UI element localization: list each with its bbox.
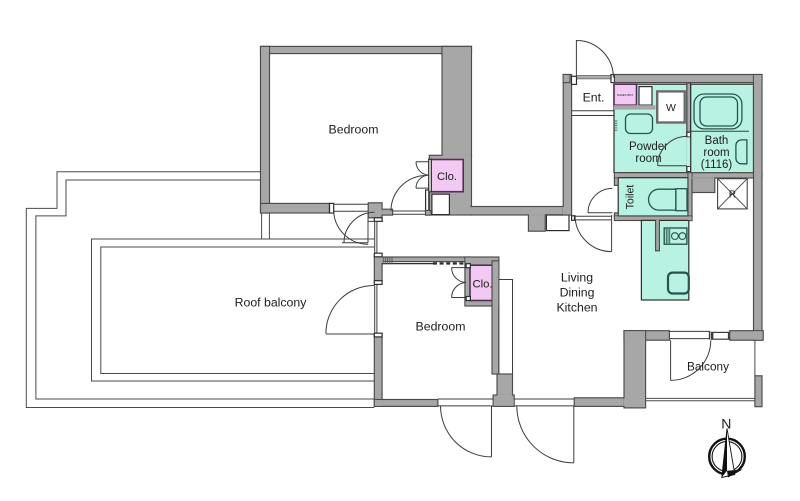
svg-text:Bedroom: Bedroom [416,320,466,334]
svg-text:Ent.: Ent. [583,91,605,105]
svg-text:R: R [729,190,736,201]
svg-text:Kitchen: Kitchen [556,301,597,315]
svg-text:Balcony: Balcony [687,360,729,374]
svg-text:room: room [703,147,729,159]
svg-text:Living: Living [561,271,593,285]
svg-text:Dining: Dining [560,286,595,300]
svg-text:Clo.: Clo. [472,279,492,291]
svg-text:Roof balcony: Roof balcony [235,296,308,310]
svg-text:Toilet: Toilet [625,185,637,210]
svg-text:Clo.: Clo. [437,171,457,183]
svg-text:W: W [666,102,676,114]
svg-text:(1116): (1116) [701,159,733,171]
svg-text:Bedroom: Bedroom [329,123,379,137]
svg-text:Bath: Bath [705,135,729,147]
svg-text:Powder: Powder [629,141,668,153]
svg-text:N: N [721,416,731,432]
svg-text:SHOES BOX: SHOES BOX [617,93,634,97]
